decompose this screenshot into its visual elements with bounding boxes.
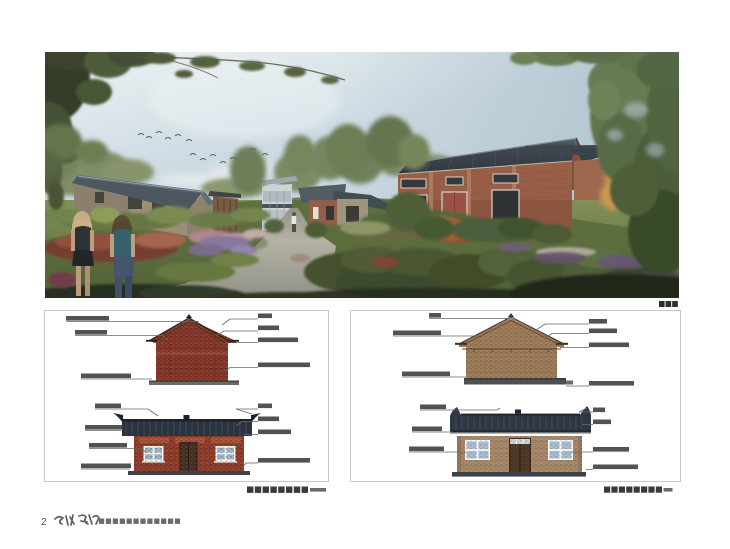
svg-text:2: 2 [41,517,47,528]
